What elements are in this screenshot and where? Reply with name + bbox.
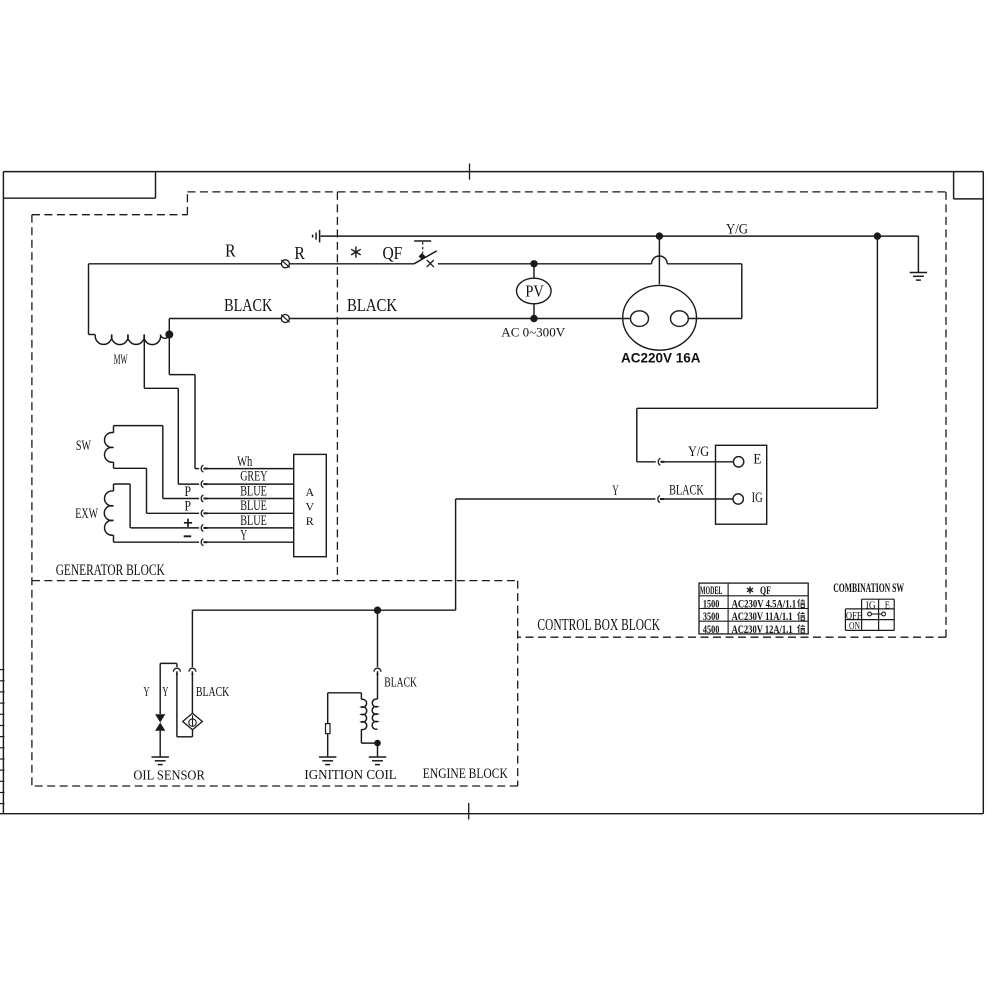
svg-text:BLACK: BLACK — [196, 685, 229, 700]
svg-text:ON: ON — [849, 620, 860, 632]
svg-text:Y/G: Y/G — [688, 444, 709, 460]
svg-text:3500: 3500 — [703, 611, 720, 623]
svg-text:Y: Y — [612, 483, 619, 499]
svg-text:Y/G: Y/G — [726, 221, 748, 237]
svg-text:PV: PV — [525, 282, 544, 301]
svg-text:OIL SENSOR: OIL SENSOR — [133, 768, 205, 783]
svg-text:QF: QF — [760, 585, 771, 597]
svg-text:P: P — [185, 484, 192, 500]
svg-text:AC230V 12A/1.1: AC230V 12A/1.1 — [732, 624, 793, 636]
svg-text:BLACK: BLACK — [224, 295, 272, 315]
svg-text:AC220V 16A: AC220V 16A — [621, 349, 701, 365]
svg-text:AC230V 11A/1.1: AC230V 11A/1.1 — [732, 611, 793, 623]
svg-text:IG: IG — [752, 490, 763, 506]
svg-text:R: R — [225, 240, 236, 260]
svg-text:V: V — [305, 499, 314, 513]
svg-text:A: A — [305, 485, 314, 499]
svg-text:GENERATOR BLOCK: GENERATOR BLOCK — [56, 562, 165, 579]
svg-text:IG: IG — [866, 599, 876, 611]
svg-text:Y: Y — [162, 685, 168, 700]
svg-text:Y: Y — [240, 528, 247, 544]
svg-text:AC 0~300V: AC 0~300V — [501, 325, 565, 339]
svg-text:EXW: EXW — [75, 506, 98, 522]
svg-text:E: E — [753, 452, 761, 468]
svg-text:R: R — [294, 243, 305, 263]
svg-text:R: R — [306, 514, 314, 528]
svg-text:IGNITION COIL: IGNITION COIL — [304, 768, 396, 783]
svg-text:1500: 1500 — [703, 599, 720, 611]
svg-text:BLUE: BLUE — [240, 498, 267, 514]
svg-text:MODEL: MODEL — [700, 585, 723, 597]
svg-text:4500: 4500 — [703, 624, 720, 636]
svg-text:GREY: GREY — [240, 469, 268, 485]
svg-text:BLACK: BLACK — [384, 675, 417, 690]
svg-text:MW: MW — [114, 352, 128, 368]
svg-text:BLUE: BLUE — [240, 513, 267, 529]
svg-text:QF: QF — [383, 243, 403, 263]
svg-text:BLACK: BLACK — [347, 295, 397, 315]
svg-text:ENGINE BLOCK: ENGINE BLOCK — [423, 766, 508, 782]
svg-text:BLACK: BLACK — [669, 482, 704, 498]
svg-text:AC230V 4.5A/1.1: AC230V 4.5A/1.1 — [732, 599, 797, 611]
svg-text:COMBINATION SW: COMBINATION SW — [833, 581, 904, 595]
svg-text:P: P — [185, 499, 192, 515]
svg-text:Wh: Wh — [237, 454, 253, 470]
svg-text:BLUE: BLUE — [240, 484, 267, 500]
svg-text:CONTROL BOX BLOCK: CONTROL BOX BLOCK — [537, 615, 660, 634]
svg-text:E: E — [885, 599, 890, 611]
svg-text:SW: SW — [76, 438, 92, 454]
svg-text:Y: Y — [144, 685, 150, 700]
